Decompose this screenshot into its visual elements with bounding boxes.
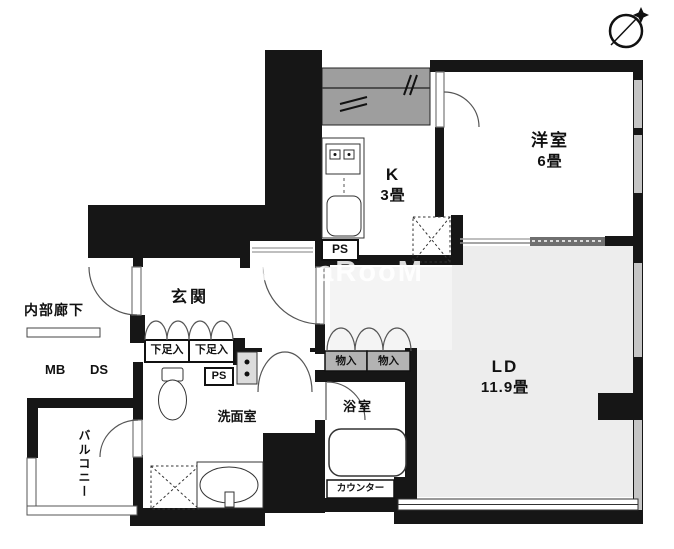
watermark: CasaRooM: [236, 256, 446, 289]
ld-name: LD: [492, 357, 519, 376]
ld-size: 11.9畳: [481, 379, 529, 396]
western-size: 6畳: [537, 153, 562, 170]
door-arc-western: [444, 92, 479, 127]
label-ds: DS: [90, 362, 108, 378]
kitchen-sink: [327, 196, 361, 236]
label-counter: カウンター: [327, 483, 394, 495]
label-ps-upper: PS: [322, 242, 358, 257]
window-ld-bottom: [398, 499, 638, 510]
duct-strip: [322, 68, 430, 125]
sliding-door-divider: [460, 237, 605, 246]
washroom-double-door: [258, 352, 312, 392]
window-glass: [634, 80, 642, 510]
label-storage-left: 物入: [325, 355, 367, 368]
kitchen-opening: [252, 248, 313, 252]
room-label-bathroom: 浴室: [330, 399, 386, 415]
door-leaf-western: [436, 72, 444, 127]
room-label-entrance: 玄関: [158, 288, 222, 308]
label-ps-lower: PS: [205, 370, 233, 384]
room-label-washroom: 洗面室: [196, 409, 278, 425]
toilet: [159, 368, 187, 420]
room-label-western: 洋室 6畳: [500, 130, 600, 172]
kitchen-size: 3畳: [380, 187, 405, 204]
kitchen-name: K: [386, 165, 400, 184]
western-name: 洋室: [531, 131, 569, 150]
shaft-fixture: [237, 352, 257, 384]
corridor-rail: [27, 328, 100, 337]
label-storage-right: 物入: [367, 355, 410, 368]
room-label-kitchen: K 3畳: [363, 164, 423, 206]
label-mb: MB: [45, 362, 65, 378]
label-shoe-left: 下足入: [145, 344, 189, 358]
label-shoe-right: 下足入: [189, 344, 234, 358]
washbasin: [197, 462, 263, 508]
compass-icon: [610, 7, 649, 47]
shoe-closet-fans: [145, 321, 233, 340]
washer-space: [151, 466, 199, 509]
door-leaf-balcony: [133, 420, 142, 457]
door-arc-entrance: [89, 267, 137, 315]
room-label-ld: LD 11.9畳: [453, 356, 557, 398]
kitchen-counter: [322, 138, 364, 238]
room-label-inner-corridor: 内部廊下: [24, 302, 84, 320]
floor-plan: CasaRooM 洋室 6畳 K 3畳 LD 11.9畳 玄関 洗面室 浴室 バ…: [0, 0, 674, 549]
bathtub: [329, 429, 406, 476]
door-leaf-entrance: [132, 267, 141, 315]
room-label-balcony: バルコニー: [76, 421, 91, 507]
door-arc-balcony: [100, 420, 138, 457]
